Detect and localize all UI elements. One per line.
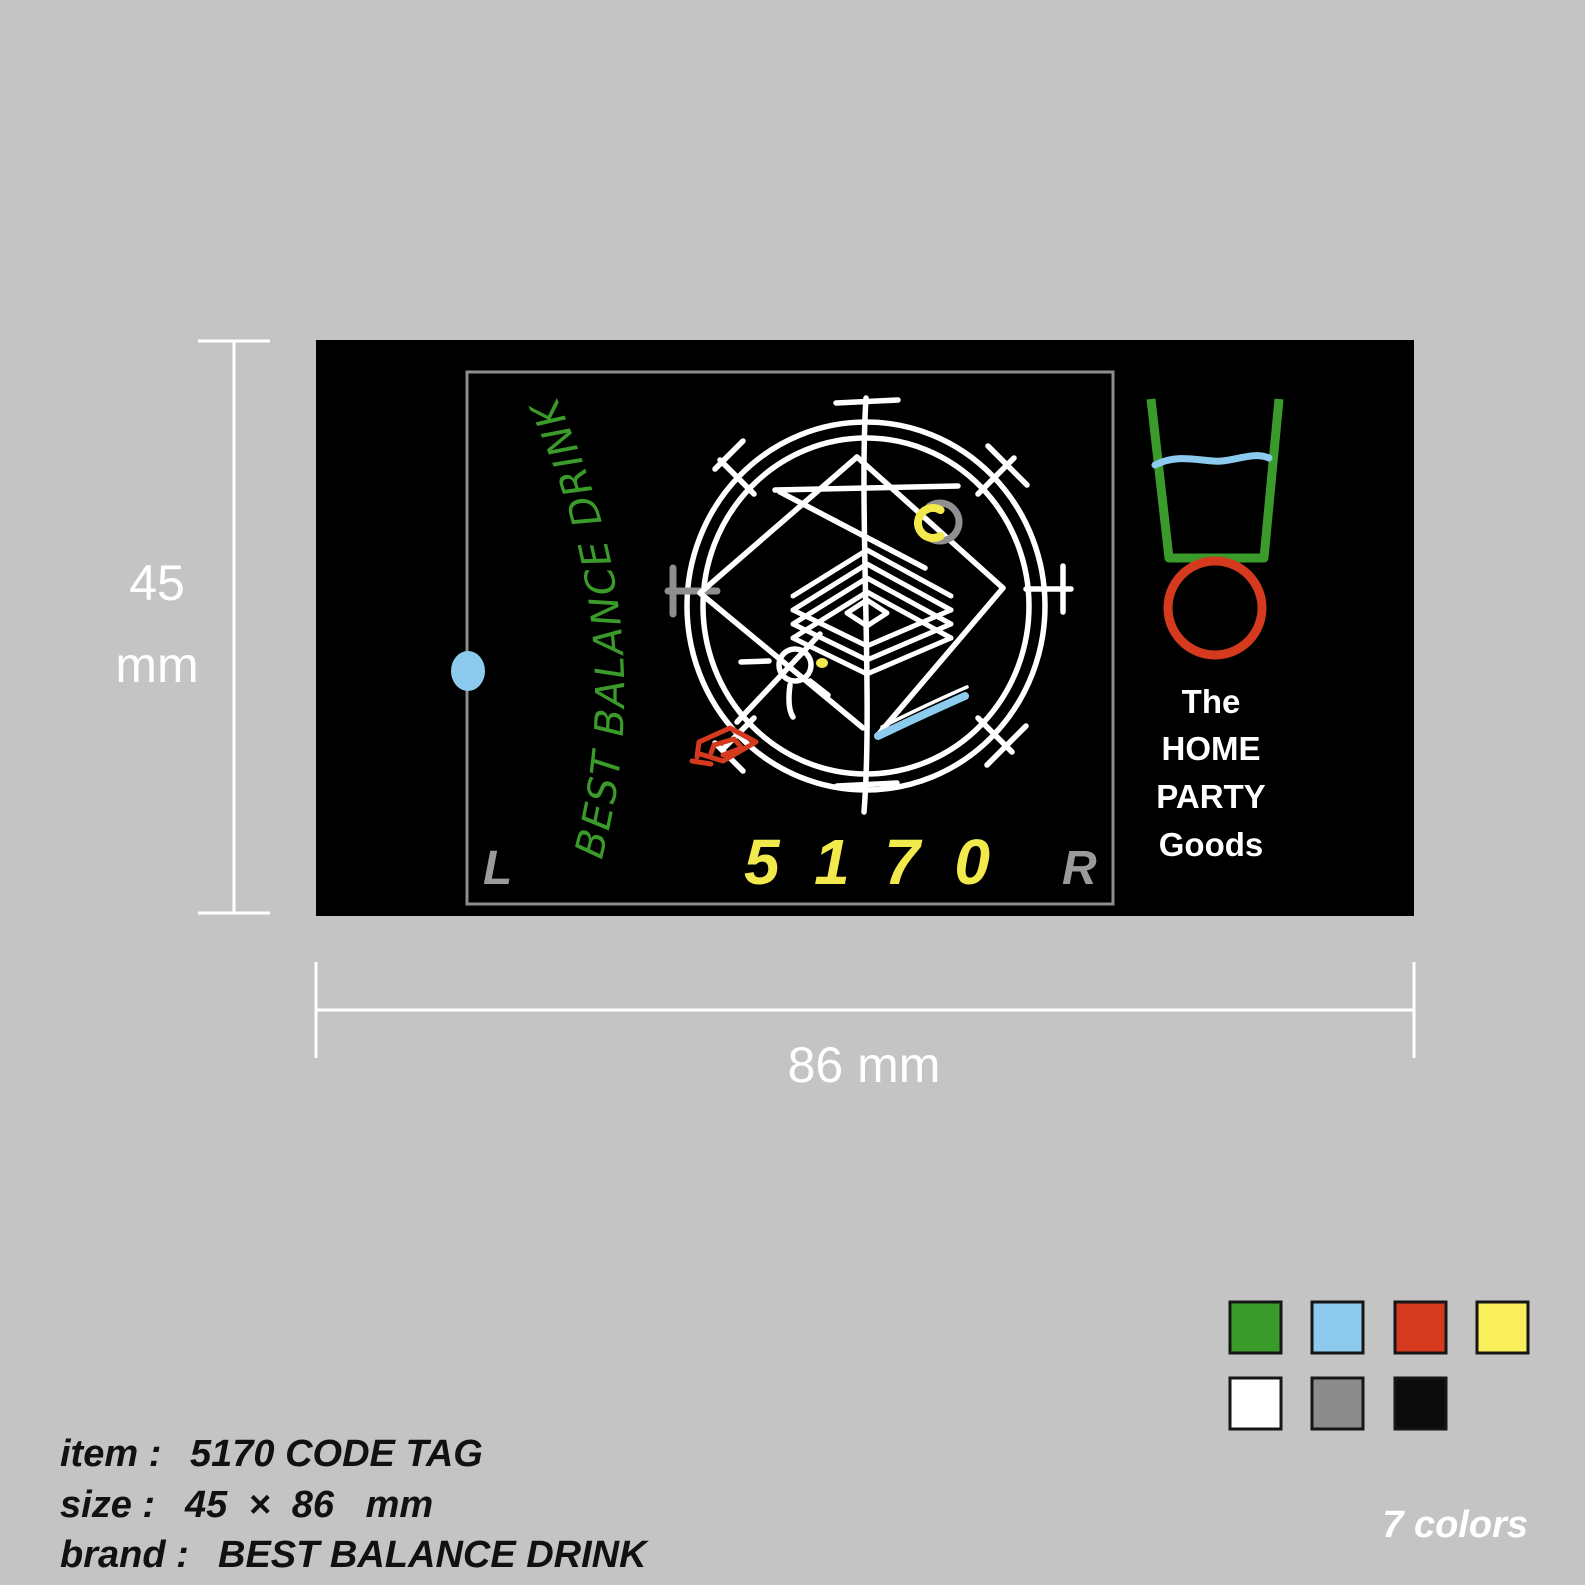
logo-line-2: HOME — [1162, 730, 1261, 767]
item-value: 5170 CODE TAG — [190, 1433, 483, 1475]
width-dimension-label: 86 mm — [788, 1037, 941, 1093]
left-marker: L — [483, 842, 512, 895]
height-dimension-unit: mm — [115, 637, 198, 693]
info-brand-row: brand :BEST BALANCE DRINK — [60, 1534, 649, 1576]
doodle-north-tick — [836, 400, 898, 403]
item-label: item : — [60, 1433, 161, 1475]
color-swatch-gray — [1312, 1378, 1363, 1429]
info-block: item :5170 CODE TAG size :45 × 86 mm bra… — [60, 1433, 649, 1576]
spec-sheet: BEST BALANCE DRINK — [0, 0, 1585, 1585]
color-palette: 7 colors — [1230, 1302, 1528, 1546]
logo-line-3: PARTY — [1156, 778, 1265, 815]
colors-count-label: 7 colors — [1382, 1504, 1528, 1546]
yellow-dot — [816, 658, 828, 668]
code-number: 5 1 7 0 — [744, 826, 992, 898]
color-swatch-red — [1395, 1302, 1446, 1353]
string-hole-dot — [451, 651, 485, 691]
info-size-row: size :45 × 86 mm — [60, 1484, 433, 1526]
logo-line-1: The — [1182, 683, 1241, 720]
color-swatch-green — [1230, 1302, 1281, 1353]
color-swatch-black — [1395, 1378, 1446, 1429]
brand-value: BEST BALANCE DRINK — [218, 1534, 649, 1576]
color-swatch-white — [1230, 1378, 1281, 1429]
logo-line-4: Goods — [1159, 826, 1264, 863]
brand-label: brand : — [60, 1534, 189, 1576]
info-item-row: item :5170 CODE TAG — [60, 1433, 483, 1475]
right-marker: R — [1062, 842, 1097, 895]
height-dimension-value: 45 — [129, 555, 185, 611]
color-swatch-light-blue — [1312, 1302, 1363, 1353]
size-value: 45 × 86 mm — [184, 1484, 433, 1526]
size-label: size : — [60, 1484, 155, 1526]
height-dimension-line — [198, 341, 270, 913]
doodle-south-tick — [837, 783, 897, 786]
spec-sheet-canvas: BEST BALANCE DRINK — [0, 0, 1585, 1585]
color-swatch-yellow — [1477, 1302, 1528, 1353]
